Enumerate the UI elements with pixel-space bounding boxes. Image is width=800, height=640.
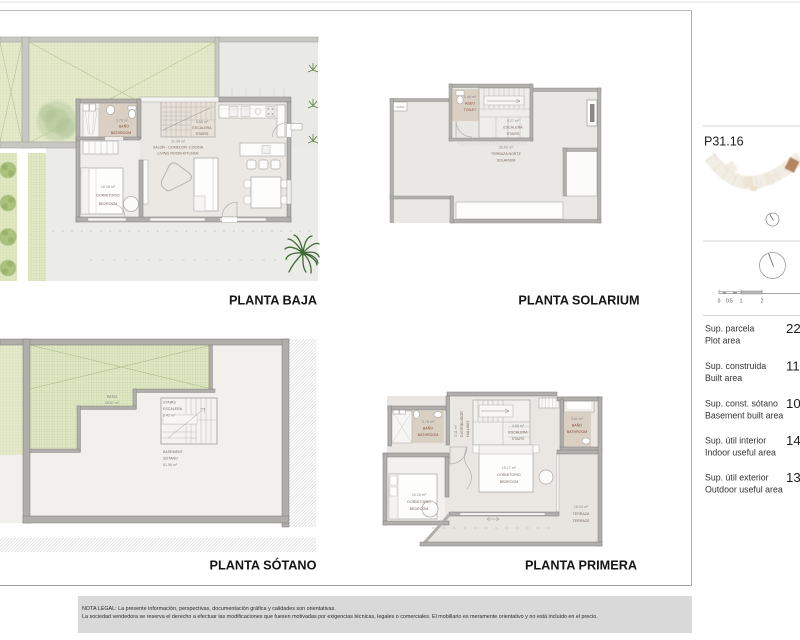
svg-text:SÓTANO: SÓTANO — [163, 456, 178, 461]
svg-text:Sup. const. sótano: Sup. const. sótano — [705, 399, 778, 409]
svg-text:Indoor useful area: Indoor useful area — [705, 448, 776, 458]
svg-text:ESCALERA: ESCALERA — [508, 431, 528, 435]
svg-text:15.17 m²: 15.17 m² — [502, 466, 517, 470]
svg-text:P31.16: P31.16 — [704, 135, 744, 149]
svg-text:1: 1 — [740, 299, 743, 305]
svg-text:BEDROOM: BEDROOM — [410, 507, 429, 511]
svg-text:16.24 m²: 16.24 m² — [574, 505, 589, 509]
svg-text:Sup. parcela: Sup. parcela — [705, 324, 754, 334]
svg-text:Plot area: Plot area — [705, 336, 740, 346]
svg-text:La sociedad vendedora se reser: La sociedad vendedora se reserva el dere… — [82, 614, 598, 620]
svg-text:ESCALERA: ESCALERA — [163, 407, 183, 411]
svg-text:STAIRS: STAIRS — [196, 132, 209, 136]
svg-text:TERRAZA NORTE: TERRAZA NORTE — [491, 152, 522, 156]
svg-text:BAÑO: BAÑO — [119, 124, 129, 129]
svg-text:NOTA LEGAL: La presente inform: NOTA LEGAL: La presente información, per… — [82, 606, 336, 612]
svg-text:BAÑO: BAÑO — [423, 426, 433, 431]
svg-text:3.78 m²: 3.78 m² — [116, 119, 129, 123]
svg-text:1.48 m²: 1.48 m² — [464, 95, 477, 99]
svg-text:33.60 m²: 33.60 m² — [499, 146, 514, 150]
svg-text:PLANTA SÓTANO: PLANTA SÓTANO — [210, 558, 317, 573]
svg-text:5.27 m²: 5.27 m² — [507, 119, 520, 123]
svg-text:DORMITORIO: DORMITORIO — [96, 194, 119, 198]
svg-text:103,65 m²: 103,65 m² — [786, 396, 800, 411]
svg-text:SALÓN - COMEDOR -COCINA: SALÓN - COMEDOR -COCINA — [153, 145, 204, 150]
svg-text:3.76 m²: 3.76 m² — [422, 420, 435, 424]
svg-text:Sup. construida: Sup. construida — [705, 361, 766, 371]
svg-text:0.5: 0.5 — [726, 299, 733, 305]
svg-text:10.18 m²: 10.18 m² — [101, 185, 116, 189]
svg-text:141,76 m²: 141,76 m² — [786, 433, 800, 448]
svg-text:ESCALERA: ESCALERA — [192, 126, 212, 130]
svg-text:BATHROOM: BATHROOM — [567, 430, 588, 434]
svg-text:BEDROOM: BEDROOM — [500, 480, 519, 484]
svg-text:STAIRS: STAIRS — [507, 132, 520, 136]
svg-text:PLANTA PRIMERA: PLANTA PRIMERA — [525, 559, 637, 573]
svg-text:BASEMENT: BASEMENT — [163, 450, 184, 454]
svg-text:Basement built area: Basement built area — [705, 411, 783, 421]
svg-text:3.11 m²: 3.11 m² — [454, 424, 458, 437]
svg-text:CLIMA: CLIMA — [396, 105, 405, 109]
svg-text:Outdoor useful area: Outdoor useful area — [705, 485, 783, 495]
svg-text:ASEO: ASEO — [465, 102, 475, 106]
svg-text:10.16 m²: 10.16 m² — [412, 493, 427, 497]
svg-text:HALLWAY: HALLWAY — [466, 420, 470, 437]
svg-text:ESCALERA: ESCALERA — [503, 126, 523, 130]
svg-text:BATHROOM: BATHROOM — [418, 433, 439, 437]
svg-text:STAIRS: STAIRS — [512, 437, 525, 441]
svg-text:25.67 m²: 25.67 m² — [105, 401, 120, 405]
svg-text:TERRAZA: TERRAZA — [573, 512, 590, 516]
svg-text:PATIO: PATIO — [107, 395, 117, 399]
svg-text:4.85 m²: 4.85 m² — [512, 424, 525, 428]
svg-text:6.66 m²: 6.66 m² — [196, 120, 209, 124]
svg-text:TERRACE: TERRACE — [572, 519, 590, 523]
svg-text:BATHROOM: BATHROOM — [111, 131, 132, 135]
svg-text:SOLARIUM: SOLARIUM — [497, 159, 516, 163]
svg-text:31.34 m²: 31.34 m² — [171, 140, 186, 144]
svg-text:DISTRIBUIDOR: DISTRIBUIDOR — [460, 411, 464, 437]
svg-text:133,51 m²: 133,51 m² — [786, 470, 800, 485]
svg-text:PLANTA BAJA: PLANTA BAJA — [229, 294, 317, 308]
svg-text:0: 0 — [718, 299, 721, 305]
svg-text:DORMITORIO: DORMITORIO — [497, 473, 520, 477]
svg-text:DORMITORIO: DORMITORIO — [407, 500, 430, 504]
svg-text:61.56 m²: 61.56 m² — [163, 463, 178, 467]
svg-text:BAÑO: BAÑO — [572, 423, 582, 428]
svg-text:Sup. útil exterior: Sup. útil exterior — [705, 473, 769, 483]
svg-text:110,75 m²: 110,75 m² — [786, 359, 800, 374]
svg-text:Sup. útil interior: Sup. útil interior — [705, 436, 766, 446]
svg-text:LIVING ROOM-KITCHEN: LIVING ROOM-KITCHEN — [158, 152, 199, 156]
svg-text:3.61 m²: 3.61 m² — [571, 417, 584, 421]
svg-text:PLANTA SOLARIUM: PLANTA SOLARIUM — [518, 294, 639, 308]
svg-text:TOILET: TOILET — [464, 108, 477, 112]
svg-text:Built area: Built area — [705, 373, 742, 383]
svg-text:229,41 m²: 229,41 m² — [786, 321, 800, 336]
svg-text:2: 2 — [761, 299, 764, 305]
svg-text:5.42 m²: 5.42 m² — [163, 414, 176, 418]
svg-text:STAIRS: STAIRS — [163, 401, 176, 405]
